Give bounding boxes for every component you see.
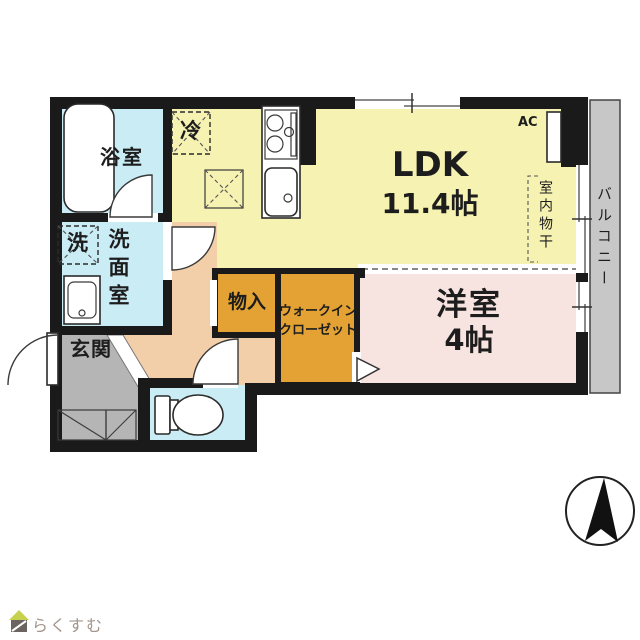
ldk-size-label: 11.4帖 <box>330 190 530 218</box>
balcony-label: バルコニー <box>596 186 611 291</box>
toilet <box>155 395 223 435</box>
entrance-label: 玄関 <box>70 339 112 359</box>
washroom-door-opening <box>163 222 172 280</box>
air-conditioner <box>547 112 561 162</box>
wic-label-line2: クローゼット <box>274 324 362 337</box>
washroom-label: 洗面室 <box>107 228 128 312</box>
kitchen-sink <box>265 168 297 216</box>
storage-label: 物入 <box>220 293 274 312</box>
kitchen-counter <box>262 106 300 218</box>
indoor-drying-label: 室内物干 <box>538 180 552 252</box>
ac-label: AC <box>518 116 538 129</box>
bath-label: 浴室 <box>100 147 144 167</box>
entrance-door <box>8 333 58 385</box>
western-room-size-label: 4帖 <box>362 326 576 355</box>
washer-label: 洗 <box>67 233 88 254</box>
fridge-label: 冷 <box>180 121 201 142</box>
washbasin <box>64 276 100 324</box>
ldk-label: LDK <box>330 148 530 182</box>
floor-plan: 浴室 洗 洗面室 冷 LDK 11.4帖 AC 室内物干 バルコニー 物入 ウォ… <box>0 0 640 640</box>
watermark-text: らくすむ <box>32 612 104 636</box>
house-icon <box>9 610 29 632</box>
wic-label-line1: ウォークイン <box>274 305 362 318</box>
western-room-label: 洋室 <box>362 290 576 321</box>
north-arrow-icon <box>566 477 634 545</box>
